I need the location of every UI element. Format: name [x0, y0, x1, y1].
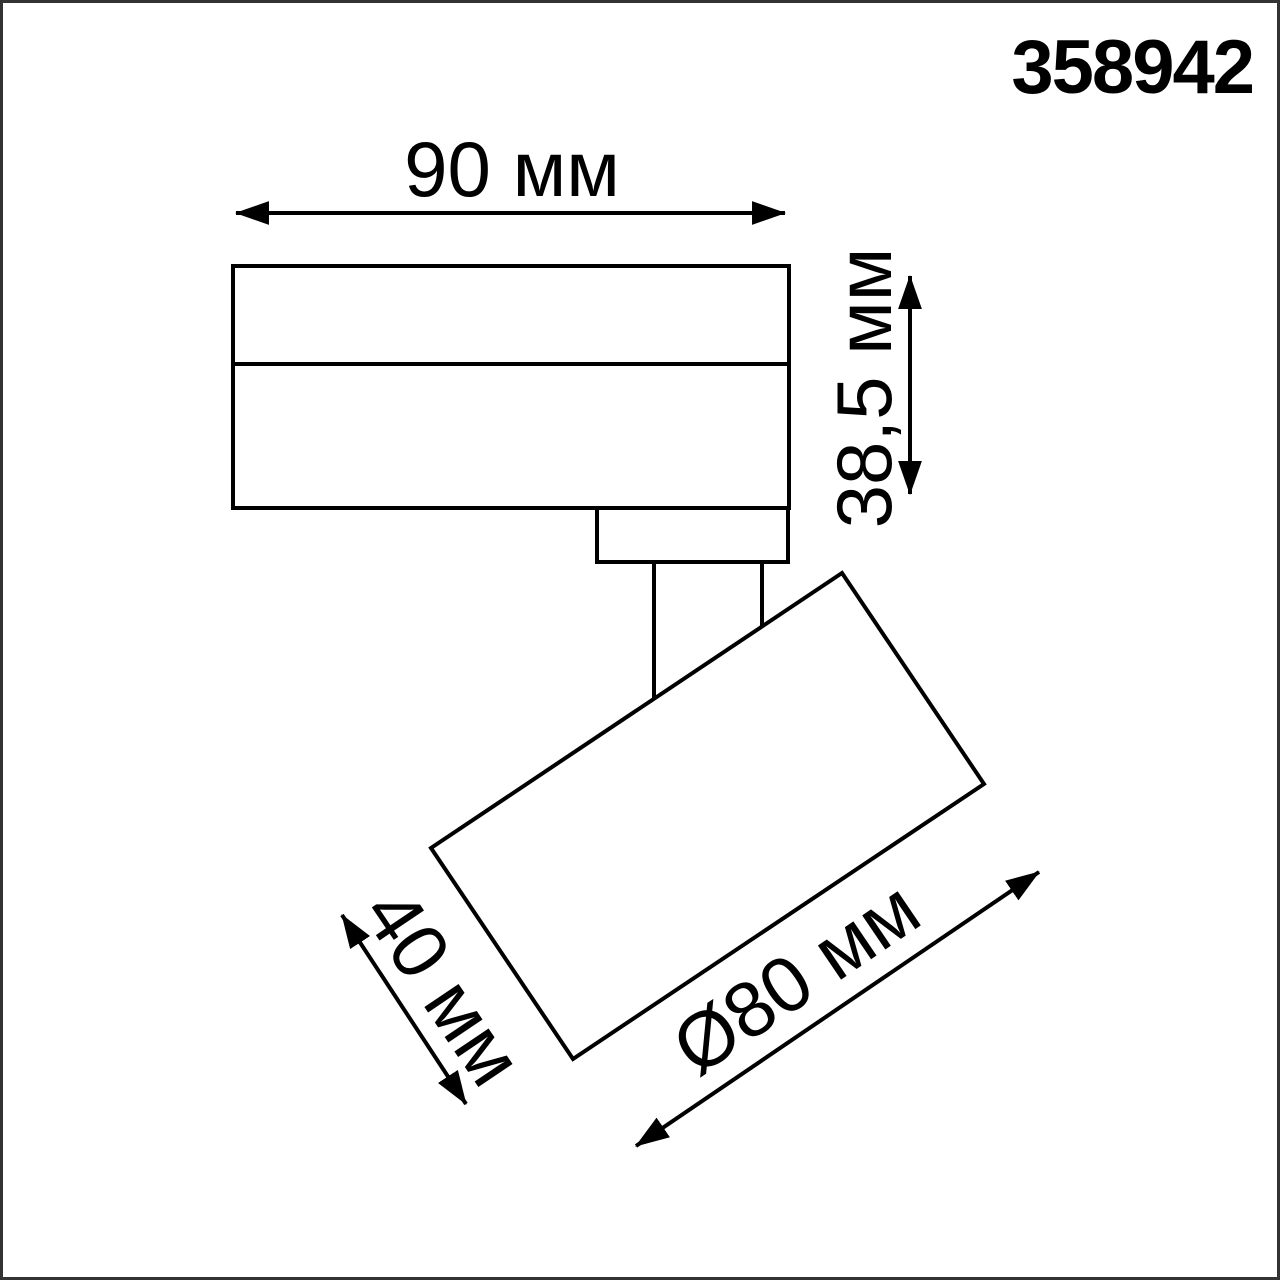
width-dimension: 90 мм	[236, 125, 785, 213]
image-border	[2, 2, 1279, 1279]
height-dimension-label: 38,5 мм	[820, 248, 908, 529]
track-adapter-block	[597, 508, 788, 562]
product-code: 358942	[1011, 25, 1253, 110]
dimension-drawing: 358942 90 мм 38,5 мм 40 мм Ø80 мм	[0, 0, 1280, 1280]
technical-drawing-canvas: 358942 90 мм 38,5 мм 40 мм Ø80 мм	[0, 0, 1280, 1280]
width-dimension-label: 90 мм	[404, 125, 620, 213]
height-dimension: 38,5 мм	[820, 248, 910, 529]
track-mount-body	[233, 266, 789, 508]
